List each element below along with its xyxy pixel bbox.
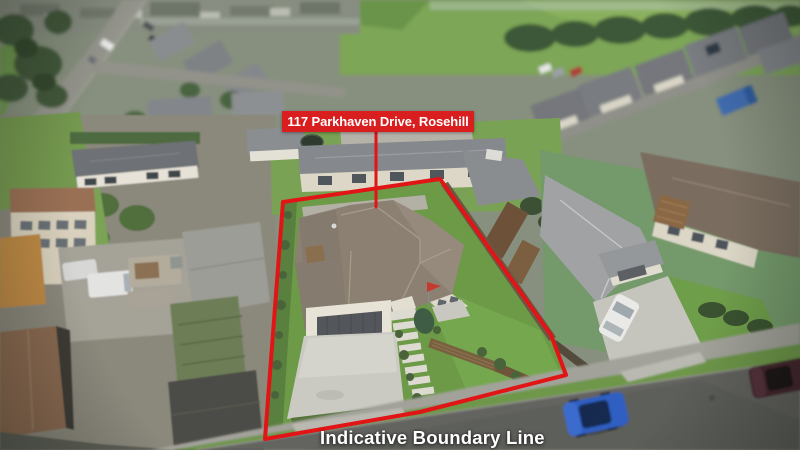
boundary-caption: Indicative Boundary Line xyxy=(320,427,545,449)
address-banner: 117 Parkhaven Drive, Rosehill xyxy=(282,111,474,132)
address-text: 117 Parkhaven Drive, Rosehill xyxy=(287,114,468,129)
aerial-photo xyxy=(0,0,800,450)
vignette xyxy=(0,0,800,450)
screenshot-root: 117 Parkhaven Drive, Rosehill Indicative… xyxy=(0,0,800,450)
